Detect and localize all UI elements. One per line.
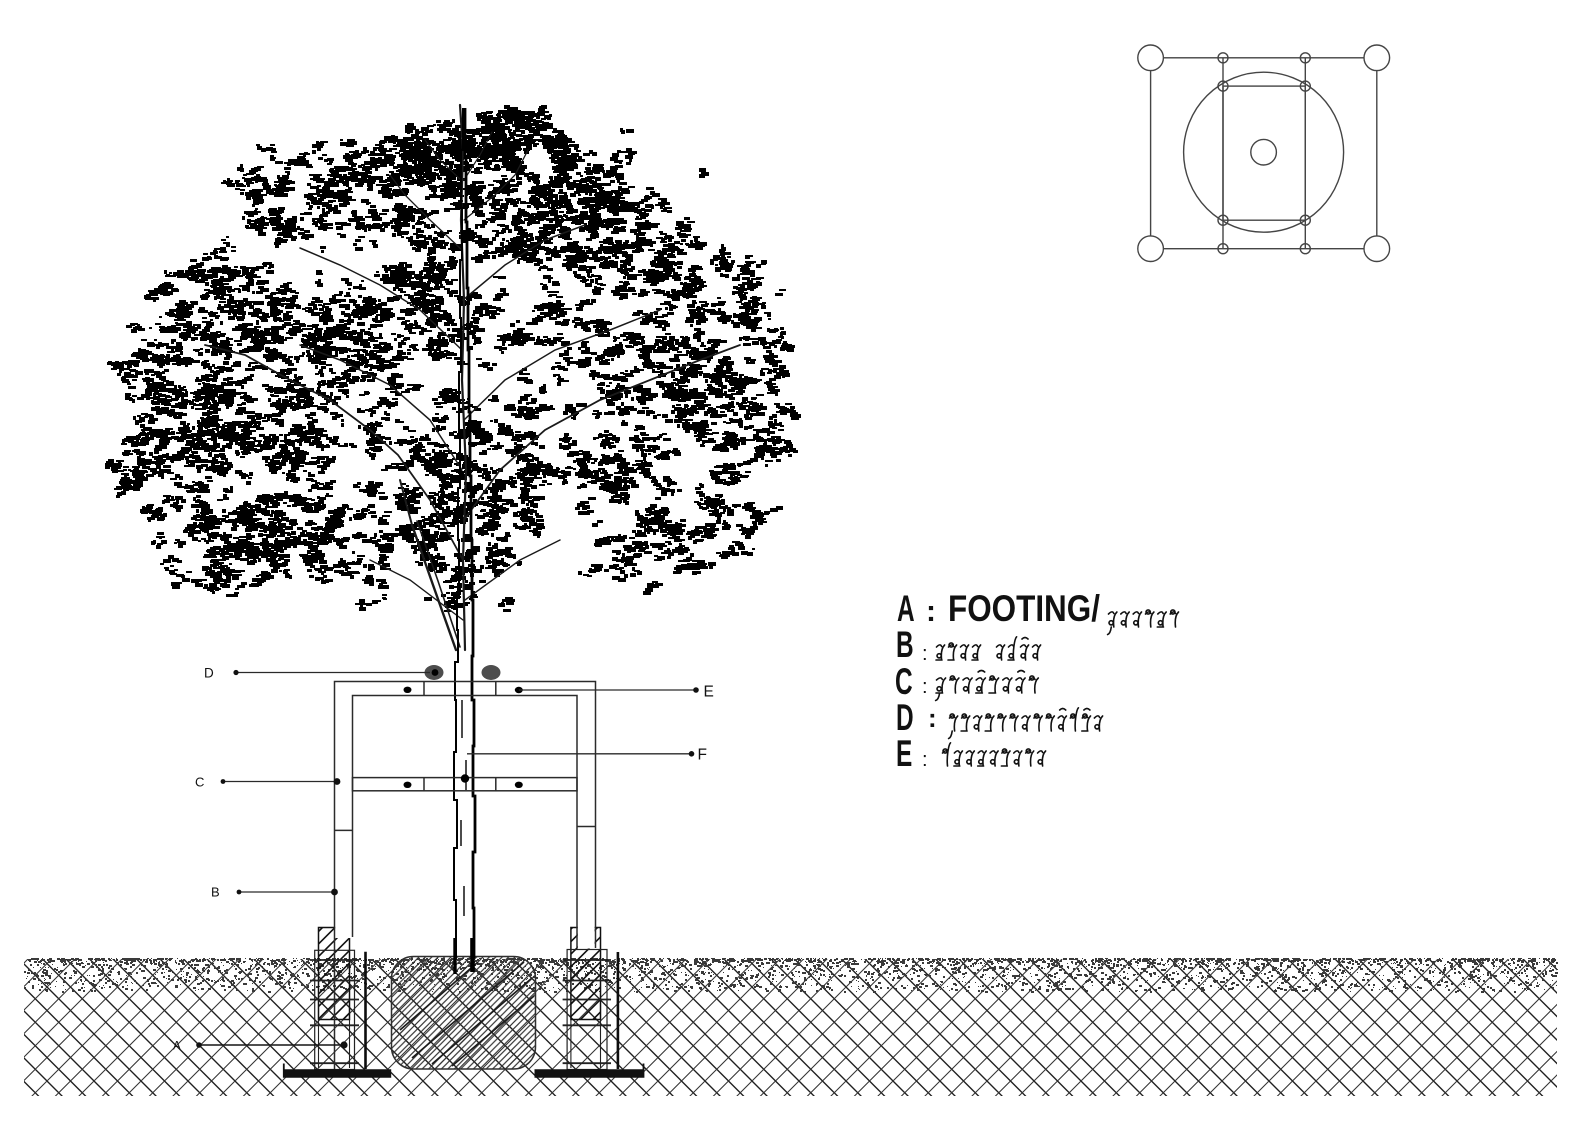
svg-text:B: B <box>211 885 220 900</box>
svg-text:E: E <box>896 733 912 774</box>
svg-text:B: B <box>896 624 914 665</box>
svg-text:C: C <box>195 775 204 790</box>
svg-text:F: F <box>698 747 707 764</box>
svg-text::: : <box>922 676 928 698</box>
svg-text::: : <box>922 749 928 771</box>
svg-text:D: D <box>204 666 214 681</box>
svg-text::: : <box>928 703 937 733</box>
svg-text::: : <box>926 595 936 628</box>
svg-text:E: E <box>704 684 714 701</box>
svg-text:A: A <box>173 1041 181 1053</box>
svg-text::: : <box>922 643 928 665</box>
svg-text:FOOTING/: FOOTING/ <box>948 589 1100 630</box>
